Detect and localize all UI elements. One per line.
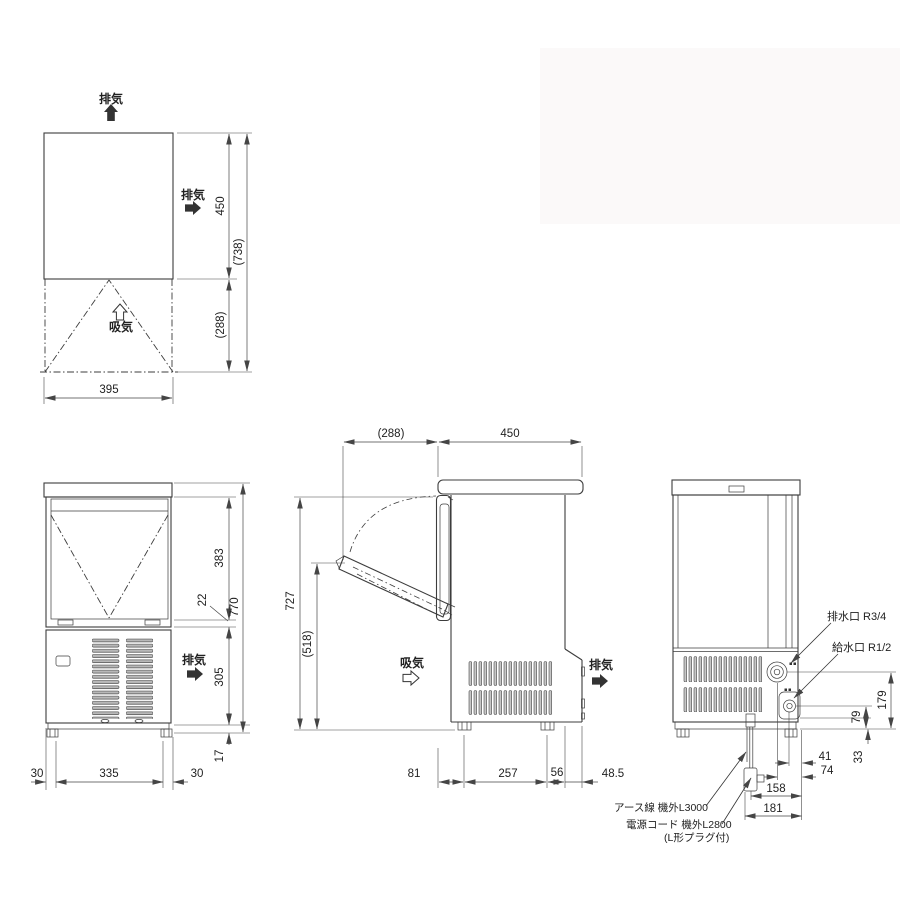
plug-tab xyxy=(757,775,764,782)
rear-view-dimensions: 179 79 33 41 74 158 181 xyxy=(745,672,896,820)
door-swing-arc xyxy=(350,496,436,552)
front-top-cap xyxy=(44,483,172,497)
dim-top-450: 450 xyxy=(215,196,227,215)
dim-side-518: (518) xyxy=(302,630,314,657)
dim-rear-41: 41 xyxy=(819,751,832,763)
side-door-open xyxy=(336,556,455,617)
rear-legs xyxy=(677,729,797,737)
power-cord-and-earth-wire xyxy=(744,714,764,791)
side-vent-grille-row2 xyxy=(468,690,553,715)
dim-rear-79: 79 xyxy=(851,711,863,724)
top-view-body-outline xyxy=(44,133,173,279)
side-door-closed xyxy=(437,496,454,621)
rear-base xyxy=(675,722,796,729)
dim-rear-181: 181 xyxy=(763,803,782,815)
power-cord-label: 電源コード 機外L2800 xyxy=(626,818,732,831)
side-body xyxy=(451,495,585,722)
exhaust-right-arrow-icon xyxy=(187,667,203,681)
rear-handle xyxy=(729,486,744,492)
side-vent-grille-row1 xyxy=(468,661,553,686)
rear-leader-labels: 排水口 R3/4 給水口 R1/2 xyxy=(791,609,891,698)
front-exhaust-label: 排気 xyxy=(182,652,206,667)
front-view-dimensions: 383 22 770 305 17 30 335 30 xyxy=(31,483,250,790)
top-view-intake-label: 吸気 xyxy=(109,319,133,334)
dim-side-288: (288) xyxy=(378,428,405,440)
top-view: 排気 吸気 排気 450 (738) (288) 395 xyxy=(40,91,252,404)
front-view: 排気 383 22 770 305 17 xyxy=(31,483,250,790)
side-view-dimensions: (288) 450 727 (518) 81 257 56 48.5 xyxy=(285,428,624,788)
dim-front-305: 305 xyxy=(214,667,226,686)
rear-vent-grille-row2 xyxy=(683,687,763,712)
dim-rear-33: 33 xyxy=(853,751,865,764)
side-top-cap xyxy=(438,480,583,494)
ice-maker-dimension-drawing: 排気 吸気 排気 450 (738) (288) 395 xyxy=(0,0,900,900)
dimension-drawing-page: 排気 吸気 排気 450 (738) (288) 395 xyxy=(0,0,900,900)
dim-rear-74: 74 xyxy=(821,765,834,777)
earth-wire-label: アース線 機外L3000 xyxy=(614,801,708,814)
dim-front-22: 22 xyxy=(197,594,209,607)
front-door-dash-left xyxy=(51,515,109,618)
rear-vent-grille-row1 xyxy=(683,656,763,682)
exhaust-right-arrow-icon xyxy=(185,201,201,215)
intake-up-arrow-icon xyxy=(113,304,127,320)
photo-background-remnant xyxy=(540,48,900,224)
exhaust-right-arrow-icon xyxy=(592,674,608,688)
dim-side-56: 56 xyxy=(551,767,564,779)
side-intake-label: 吸気 xyxy=(400,655,424,670)
dim-top-738: (738) xyxy=(233,238,245,265)
dim-front-770: 770 xyxy=(229,597,241,616)
front-badge xyxy=(56,656,70,666)
drain-outlet-label: 排水口 R3/4 xyxy=(827,609,886,623)
dim-rear-179: 179 xyxy=(877,690,889,709)
side-view: 吸気 排気 (288) 450 727 (518) xyxy=(285,428,624,788)
dim-front-30-right: 30 xyxy=(191,768,204,780)
exhaust-up-arrow-icon xyxy=(104,104,118,121)
front-base xyxy=(48,723,169,729)
front-door-dash-right xyxy=(109,515,168,618)
front-vent-grilles xyxy=(92,638,153,719)
side-legs xyxy=(458,722,554,730)
water-inlet-fitting xyxy=(779,689,800,720)
front-legs xyxy=(47,729,172,737)
front-upper-body xyxy=(46,497,171,627)
plug-note-label: (L形プラグ付) xyxy=(664,831,729,844)
dim-side-727: 727 xyxy=(285,591,297,610)
dim-front-383: 383 xyxy=(214,548,226,567)
rear-view: 排水口 R3/4 給水口 R1/2 179 79 33 xyxy=(614,480,896,844)
side-exhaust-label: 排気 xyxy=(589,657,613,672)
dim-side-450: 450 xyxy=(500,428,519,440)
rear-panel-seams xyxy=(673,495,798,652)
dim-top-288: (288) xyxy=(215,311,227,338)
dim-front-30-left: 30 xyxy=(31,768,44,780)
water-inlet-label: 給水口 R1/2 xyxy=(832,640,891,654)
top-view-exhaust-right-label: 排気 xyxy=(181,187,205,202)
rear-top-cap xyxy=(672,480,800,495)
dim-top-395: 395 xyxy=(99,384,118,396)
dim-side-81: 81 xyxy=(408,768,421,780)
cord-labels: アース線 機外L3000 電源コード 機外L2800 (L形プラグ付) xyxy=(614,752,751,844)
dim-side-257: 257 xyxy=(498,768,517,780)
dim-side-48-5: 48.5 xyxy=(602,768,624,780)
top-view-dimensions: 450 (738) (288) 395 xyxy=(44,133,252,404)
top-view-exhaust-up-label: 排気 xyxy=(99,91,123,106)
intake-right-arrow-icon xyxy=(403,671,419,685)
dim-front-335: 335 xyxy=(99,768,118,780)
dim-front-17: 17 xyxy=(214,750,226,763)
dim-rear-158: 158 xyxy=(766,783,785,795)
front-door-frame xyxy=(51,499,168,619)
